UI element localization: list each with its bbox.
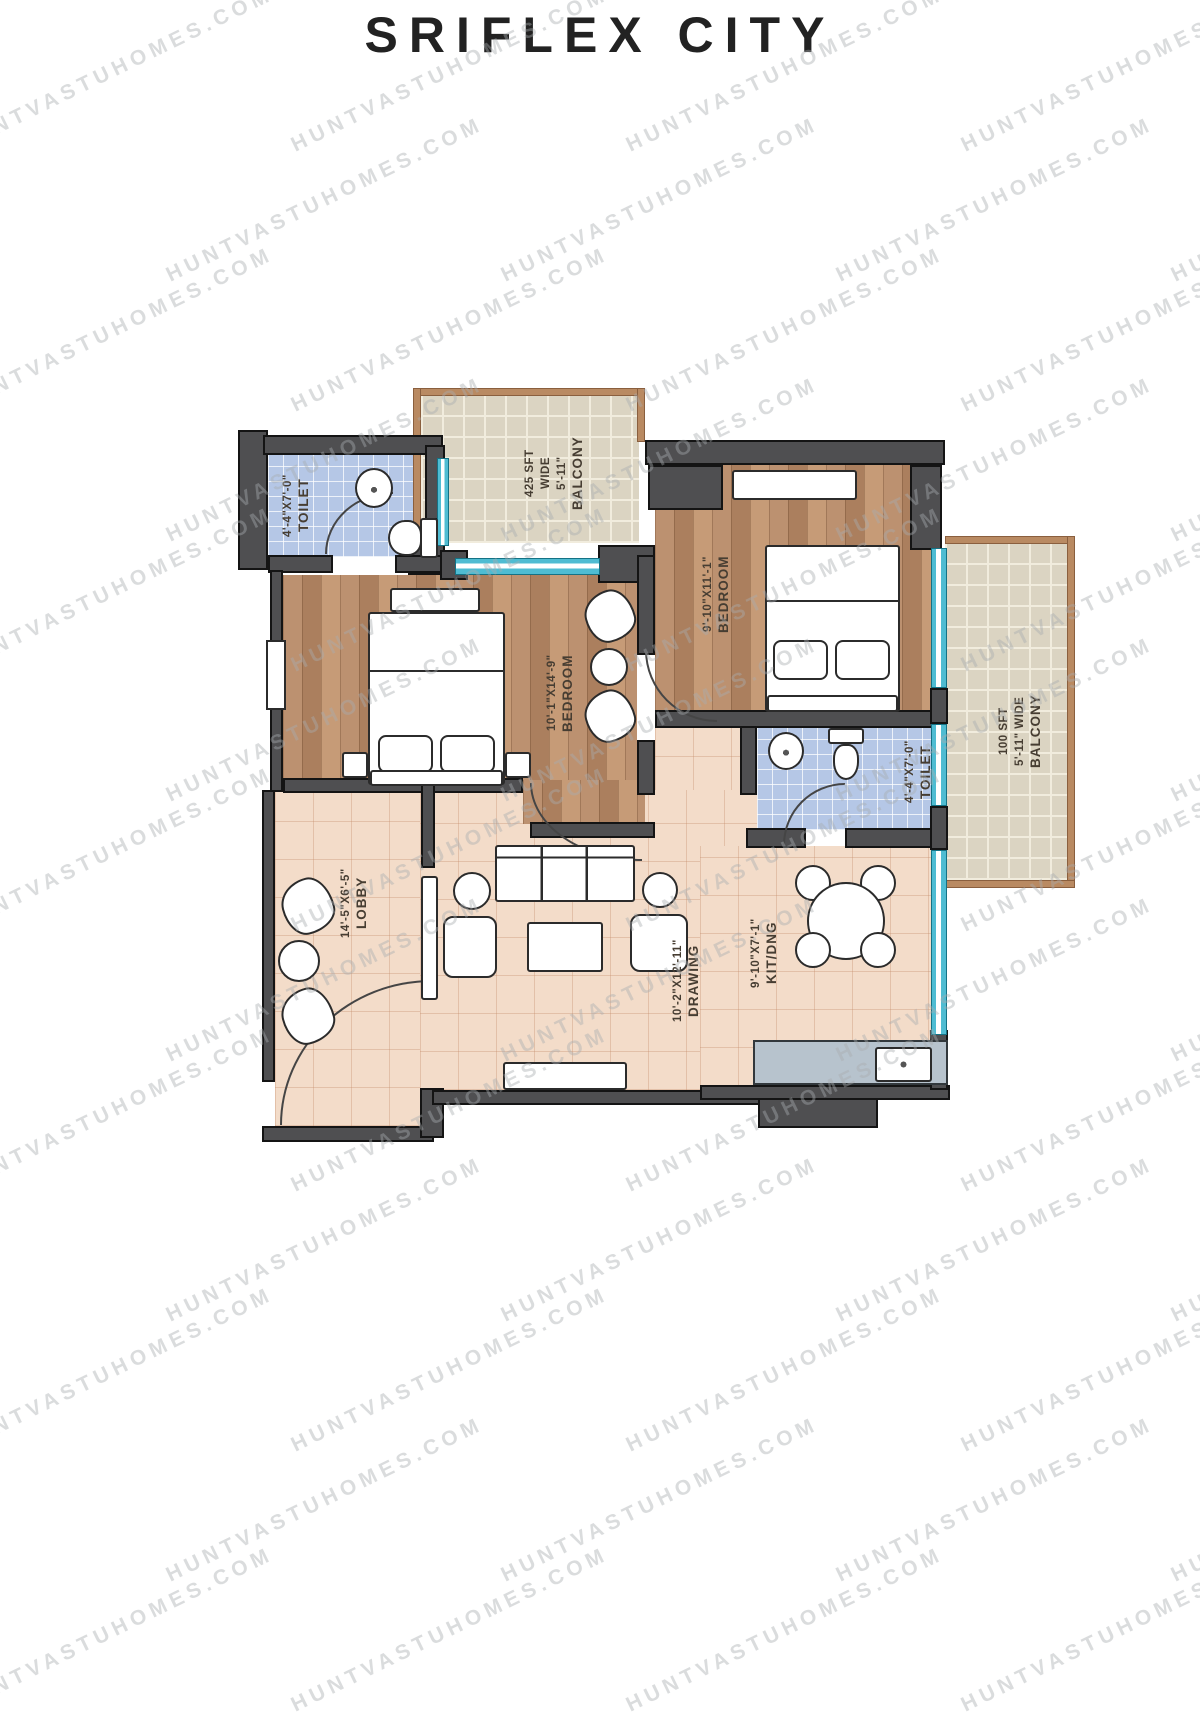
wall — [421, 783, 435, 868]
room-name: KIT/DNG — [764, 888, 780, 1018]
wc-tank — [420, 518, 438, 558]
room-name: BALCONY — [570, 408, 586, 538]
balcony-right-wall-top — [945, 536, 1075, 544]
dresser — [732, 470, 857, 500]
kitchen-sink — [875, 1047, 932, 1082]
watermark-text: HUNTVASTUHOMES.COM — [1167, 1153, 1200, 1328]
room-name: BEDROOM — [560, 633, 576, 753]
pillow — [773, 640, 828, 680]
armchair — [443, 916, 497, 978]
window-kitchen-right — [931, 850, 947, 1035]
watermark-text: HUNTVASTUHOMES.COM — [287, 1283, 612, 1458]
dining-chair — [795, 932, 831, 968]
bed-blanket-line — [370, 670, 503, 672]
watermark-text: HUNTVASTUHOMES.COM — [287, 1543, 612, 1717]
wall — [645, 440, 945, 465]
bed-headboard — [370, 770, 503, 786]
dining-chair — [860, 932, 896, 968]
page: { "title": "SRIFLEX CITY", "watermark": … — [0, 0, 1200, 1697]
page-title: SRIFLEX CITY — [0, 6, 1200, 64]
label-bedroom1: BEDROOM 10'-1"X14'-9" — [528, 633, 576, 753]
room-area: 100 SFT — [996, 672, 1012, 790]
room-name: DRAWING — [686, 898, 702, 1063]
round-table — [590, 648, 628, 686]
room-name: TOILET — [918, 722, 934, 822]
room-name: BALCONY — [1028, 672, 1044, 790]
watermark-text: HUNTVASTUHOMES.COM — [1167, 633, 1200, 808]
room-dims: 14'-5"X6'-5" — [338, 843, 354, 963]
room-dims: 10'-1"X14'-9" — [544, 633, 560, 753]
floor-plan: TOILET 4'-4"X7'-0" BALCONY 5'-11" WIDE 4… — [230, 385, 1075, 1140]
wall — [845, 828, 943, 848]
wall — [637, 555, 655, 655]
label-lobby: LOBBY 14'-5"X6'-5" — [326, 843, 370, 963]
room-name: LOBBY — [354, 843, 370, 963]
room-area: 425 SFT — [522, 408, 538, 538]
pillow — [835, 640, 890, 680]
watermark-text: HUNTVASTUHOMES.COM — [162, 1413, 487, 1588]
watermark-text: HUNTVASTUHOMES.COM — [1167, 1413, 1200, 1588]
window-sill — [266, 640, 286, 710]
room-width: 5'-11" — [554, 408, 570, 538]
watermark-text: HUNTVASTUHOMES.COM — [832, 113, 1157, 288]
watermark-text: HUNTVASTUHOMES.COM — [162, 1153, 487, 1328]
room-dims: 9'-10"X7'-1" — [748, 888, 764, 1018]
balcony-right-wall-bottom — [945, 880, 1075, 888]
label-bedroom2: BEDROOM 9'-10"X11'-1" — [688, 532, 732, 657]
wall — [262, 790, 275, 1082]
room-wide: WIDE — [538, 408, 554, 538]
wall — [910, 465, 942, 550]
double-bed — [765, 545, 900, 712]
sofa — [495, 845, 635, 902]
window-toilet1 — [437, 458, 449, 546]
washbasin — [768, 732, 804, 770]
watermark-text: HUNTVASTUHOMES.COM — [0, 1283, 277, 1458]
label-drawing: DRAWING 10'-2"X12'-11" — [652, 898, 702, 1063]
wall — [740, 725, 757, 795]
slim-cabinet — [421, 876, 438, 1000]
watermark-text: HUNTVASTUHOMES.COM — [957, 1283, 1200, 1458]
pillow — [440, 735, 495, 773]
watermark-text: HUNTVASTUHOMES.COM — [497, 1413, 822, 1588]
watermark-text: HUNTVASTUHOMES.COM — [832, 1413, 1157, 1588]
wall — [262, 1126, 434, 1142]
room-name: TOILET — [296, 448, 312, 563]
watermark-text: HUNTVASTUHOMES.COM — [1167, 113, 1200, 288]
watermark-text: HUNTVASTUHOMES.COM — [497, 1153, 822, 1328]
label-toilet1: TOILET 4'-4"X7'-0" — [272, 448, 312, 563]
label-kitchen-dining: KIT/DNG 9'-10"X7'-1" — [743, 888, 780, 1018]
side-table — [505, 752, 531, 778]
wardrobe-bedroom2 — [648, 465, 723, 510]
wc-toilet — [833, 744, 859, 780]
room-dims: 4'-4"X7'-0" — [280, 448, 296, 563]
pillow — [378, 735, 433, 773]
bed-headboard — [767, 695, 898, 712]
watermark-text: HUNTVASTUHOMES.COM — [957, 1543, 1200, 1717]
wall — [930, 688, 948, 724]
dresser — [390, 588, 480, 612]
watermark-text: HUNTVASTUHOMES.COM — [1167, 373, 1200, 548]
balcony-top-wall-top — [413, 388, 645, 396]
balcony-right-wall-right — [1067, 536, 1075, 888]
side-table — [342, 752, 368, 778]
watermark-text: HUNTVASTUHOMES.COM — [0, 1543, 277, 1717]
room-dims: 4'-4"X7'-0" — [902, 722, 918, 822]
room-width: 5'-11" WIDE — [1012, 672, 1028, 790]
round-stool — [278, 940, 320, 982]
label-balcony-right: BALCONY 5'-11" WIDE 100 SFT — [966, 672, 1044, 790]
balcony-top-wall-right — [637, 388, 645, 442]
watermark-text: HUNTVASTUHOMES.COM — [1167, 893, 1200, 1068]
window-bedroom2-right — [931, 548, 947, 688]
room-name: BEDROOM — [716, 532, 732, 657]
watermark-text: HUNTVASTUHOMES.COM — [162, 113, 487, 288]
wc-toilet — [388, 520, 422, 556]
wall — [395, 555, 445, 573]
watermark-text: HUNTVASTUHOMES.COM — [622, 1543, 947, 1717]
wc-tank — [828, 728, 864, 744]
room-dims: 10'-2"X12'-11" — [670, 898, 686, 1063]
watermark-text: HUNTVASTUHOMES.COM — [832, 1153, 1157, 1328]
wall — [700, 1085, 950, 1100]
watermark-text: HUNTVASTUHOMES.COM — [497, 113, 822, 288]
washbasin — [355, 468, 393, 508]
room-dims: 9'-10"X11'-1" — [700, 532, 716, 657]
tv-cabinet — [503, 1062, 627, 1090]
watermark-text: HUNTVASTUHOMES.COM — [622, 1283, 947, 1458]
bed-blanket-line — [767, 600, 898, 602]
side-stool — [453, 872, 491, 910]
label-balcony-top: BALCONY 5'-11" WIDE 425 SFT — [490, 408, 586, 538]
window-bedroom1-top — [455, 558, 600, 575]
label-toilet2: TOILET 4'-4"X7'-0" — [876, 722, 934, 822]
coffee-table — [527, 922, 603, 972]
